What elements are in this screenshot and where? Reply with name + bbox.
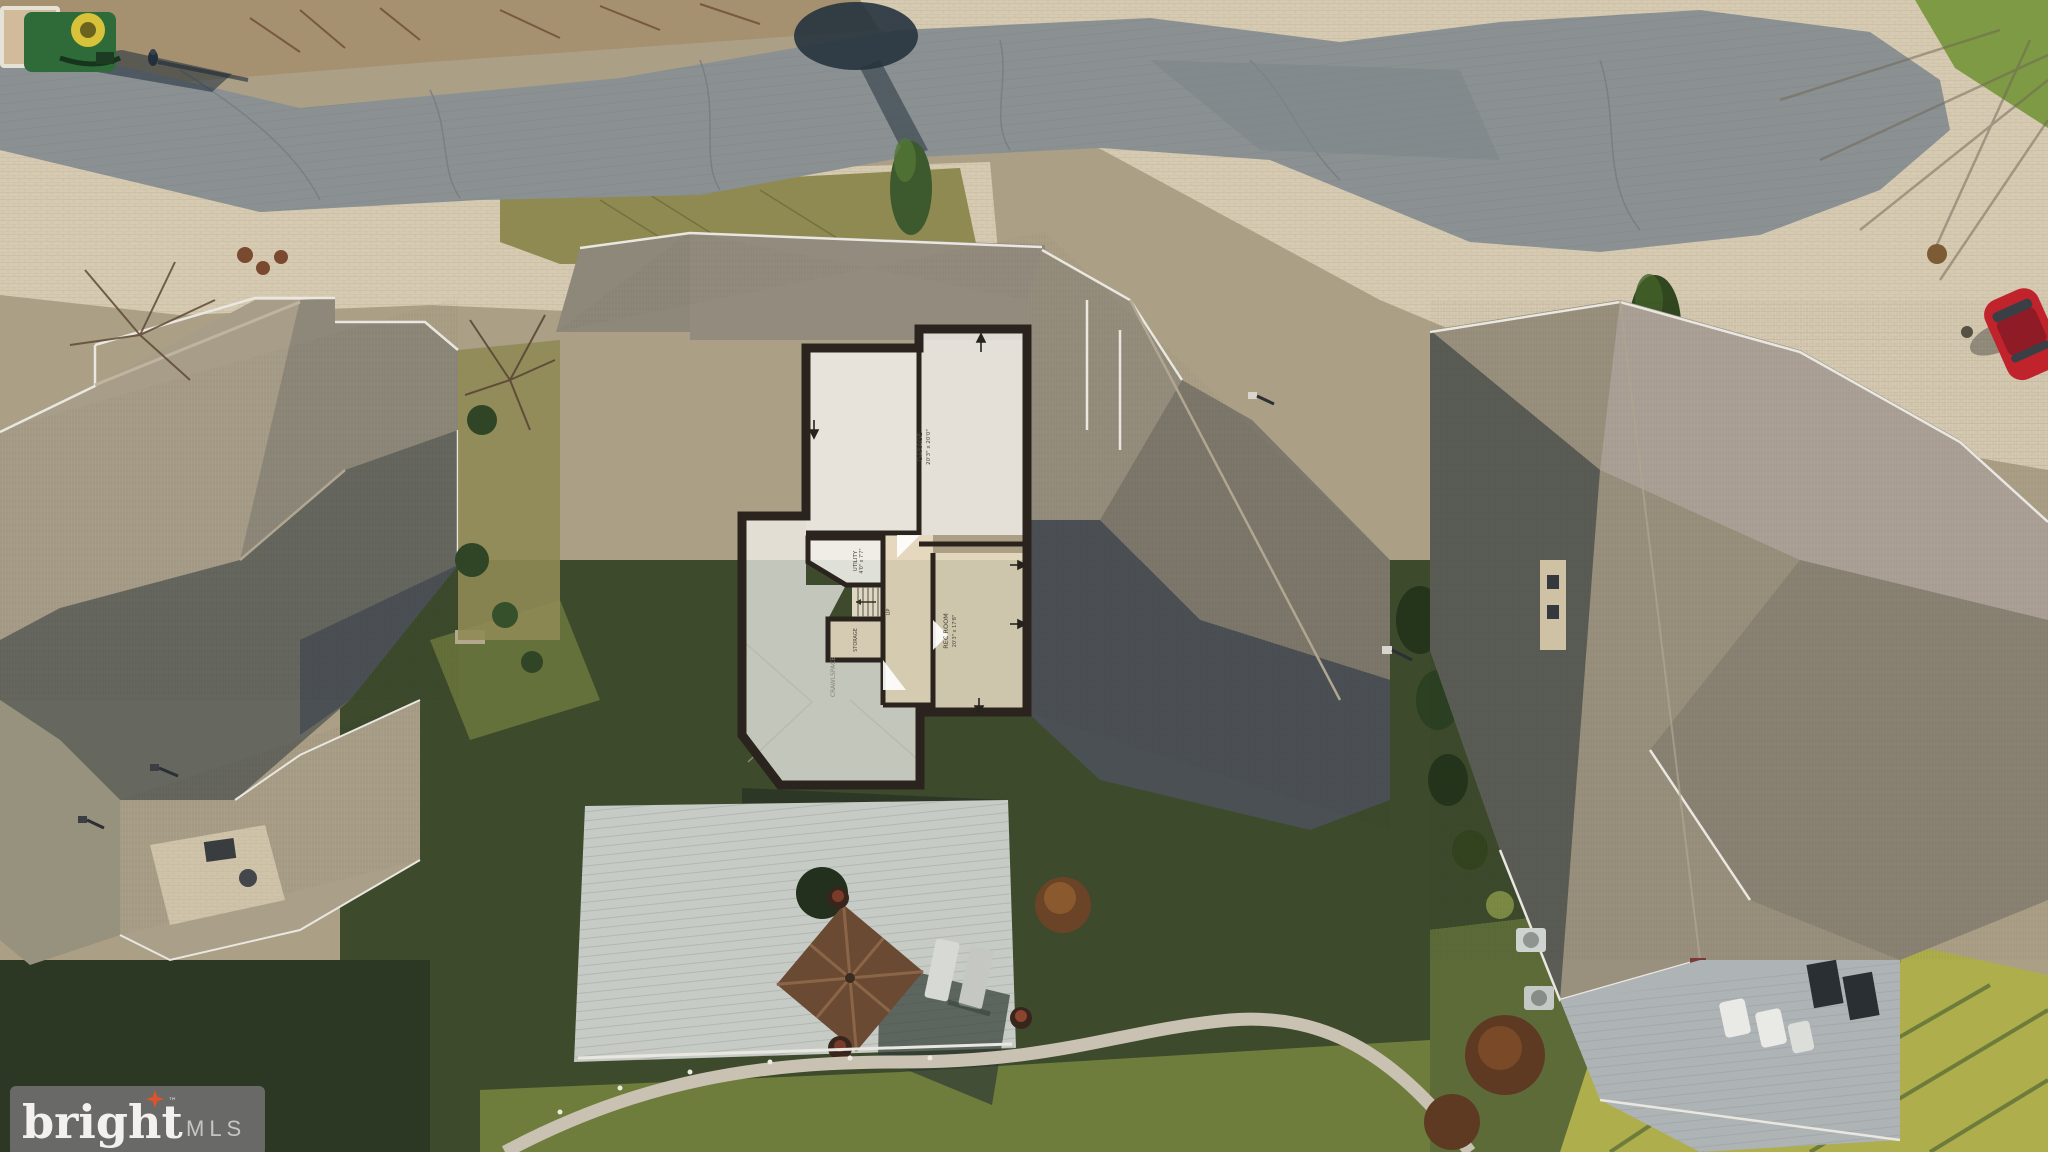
watermark-mls: MLS xyxy=(186,1116,246,1141)
bush xyxy=(455,543,489,577)
room-left xyxy=(806,348,919,533)
bush xyxy=(521,651,543,673)
room-garage xyxy=(919,329,1027,535)
recroom-label: REC ROOM xyxy=(942,613,950,649)
watermark-tm: ™ xyxy=(168,1097,177,1107)
aerial-scene: GARAGE 20'3" x 20'0" UTILITY 4'0" x 7'7"… xyxy=(0,0,2048,1152)
crawlspace-label: CRAWLSPACE xyxy=(830,657,837,697)
grill xyxy=(204,838,236,862)
left-building xyxy=(0,298,485,965)
bush xyxy=(467,405,497,435)
storage-label: STORAGE xyxy=(853,628,859,652)
garage-label: GARAGE xyxy=(916,432,924,461)
manhole xyxy=(1927,244,1947,264)
watermark: bright ™ MLS xyxy=(10,1086,265,1152)
utility-label: UTILITY xyxy=(853,550,859,571)
stairs-label: STAIRS xyxy=(841,594,847,610)
patio-table xyxy=(239,869,257,887)
bush xyxy=(492,602,518,628)
aerial-photo: GARAGE 20'3" x 20'0" UTILITY 4'0" x 7'7"… xyxy=(0,0,2048,1152)
utility-dims: 4'0" x 7'7" xyxy=(859,548,865,573)
recroom-dims: 20'3" x 17'8" xyxy=(952,615,958,648)
garage-dims: 20'3" x 20'0" xyxy=(926,429,932,465)
up-label: UP xyxy=(886,609,892,616)
watermark-brand: bright xyxy=(22,1095,183,1149)
side-yard xyxy=(455,315,560,673)
